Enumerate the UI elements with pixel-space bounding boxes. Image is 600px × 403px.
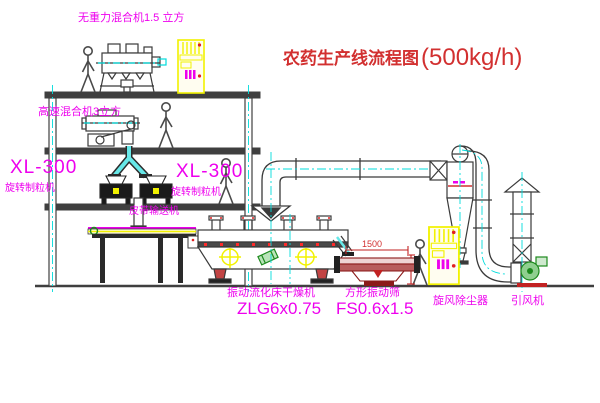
belt-conveyor	[88, 227, 199, 283]
control-cabinet-1	[178, 40, 204, 93]
granulator-right	[140, 176, 172, 204]
pesticide-line-flow-diagram: 无重力混合机1.5 立方 农药生产线流程图 (500kg/h) 高速混合机3立方…	[0, 0, 600, 403]
gravity-free-mixer	[96, 44, 166, 92]
fluid-bed-dryer	[198, 216, 348, 283]
exhaust-duct	[252, 158, 441, 221]
granulator-left	[100, 176, 132, 204]
person-figure-floor2	[159, 103, 173, 148]
high-speed-mixer	[82, 110, 140, 146]
diagram-canvas	[0, 0, 600, 403]
control-cabinet-2	[429, 227, 459, 284]
person-figure-roof	[81, 47, 95, 92]
person-figure-floor3	[219, 159, 233, 204]
